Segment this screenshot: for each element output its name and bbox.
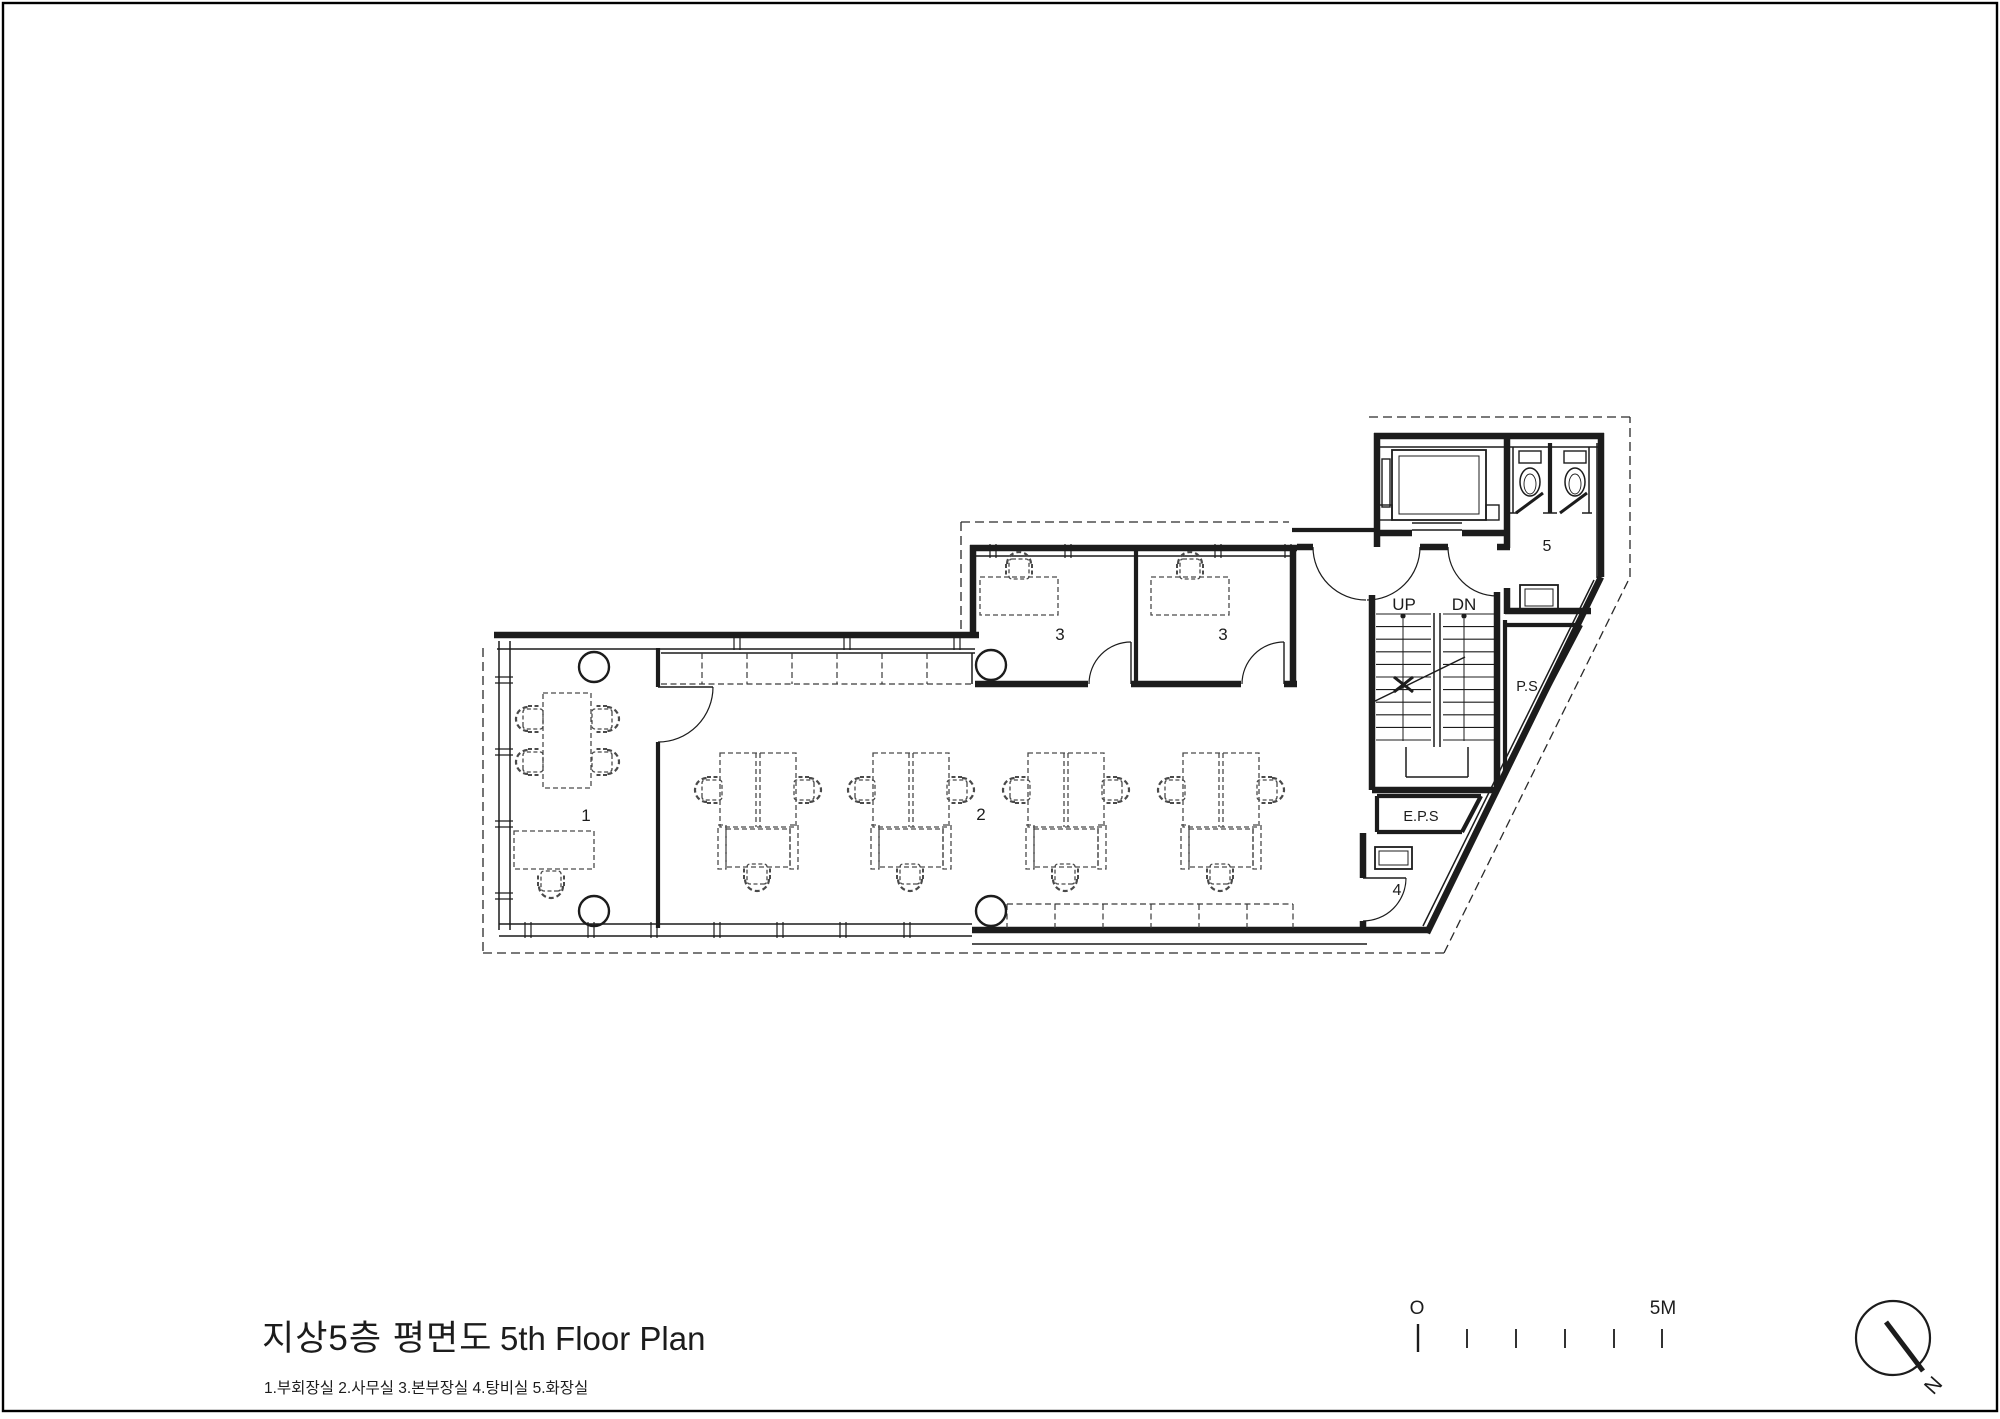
plan-labels: 1 2 3 3 4 5 UP DN P.S E.P.S bbox=[581, 538, 1551, 899]
north-needle bbox=[1886, 1322, 1923, 1371]
title-block: 지상5층 평면도 5th Floor Plan 1.부회장실 2.사무실 3.본… bbox=[262, 1319, 705, 1397]
furniture-dashed bbox=[514, 552, 1284, 898]
room-label-3b: 3 bbox=[1218, 625, 1227, 644]
scale-bar: O 5M bbox=[1410, 1298, 1677, 1319]
room-label-5: 5 bbox=[1543, 538, 1552, 555]
title-korean: 지상5층 평면도 bbox=[262, 1319, 492, 1358]
north-label: N bbox=[1920, 1372, 1947, 1399]
scale-zero-label: O bbox=[1410, 1298, 1425, 1319]
title-english: 5th Floor Plan bbox=[500, 1320, 705, 1357]
ps-shaft-label: P.S bbox=[1516, 679, 1538, 695]
floor-plan-drawing: 1 2 3 3 4 5 UP DN P.S E.P.S 지상5층 평면도 5th… bbox=[0, 0, 2000, 1414]
sheet-border bbox=[3, 3, 1997, 1411]
cabinet-dashed-lines bbox=[661, 653, 1293, 928]
scale-max-label: 5M bbox=[1650, 1298, 1676, 1319]
window-mullion-ticks bbox=[495, 544, 1291, 938]
legend-text: 1.부회장실 2.사무실 3.본부장실 4.탕비실 5.화장실 bbox=[264, 1379, 588, 1397]
stair-dn-label: DN bbox=[1452, 595, 1477, 614]
room-label-1: 1 bbox=[581, 806, 590, 825]
wall-inner-lines bbox=[497, 443, 1598, 944]
north-arrow: N bbox=[1856, 1301, 1947, 1399]
stair-up-label: UP bbox=[1392, 595, 1416, 614]
room-label-4: 4 bbox=[1393, 882, 1402, 899]
room-label-2: 2 bbox=[976, 805, 985, 824]
room-label-3a: 3 bbox=[1055, 625, 1064, 644]
fixtures-and-columns bbox=[579, 450, 1662, 1352]
exterior-walls bbox=[494, 433, 1604, 933]
drawing-sheet: 1 2 3 3 4 5 UP DN P.S E.P.S 지상5층 평면도 5th… bbox=[0, 0, 2000, 1414]
interior-partitions bbox=[658, 443, 1581, 928]
eps-shaft-label: E.P.S bbox=[1403, 809, 1438, 825]
